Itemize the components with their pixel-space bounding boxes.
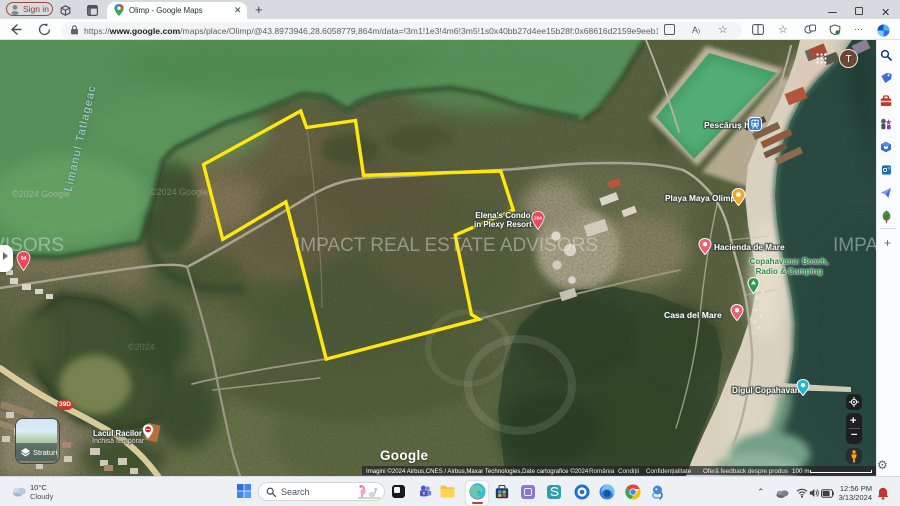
svg-text:94: 94 <box>21 256 27 262</box>
svg-text:T: T <box>422 490 425 495</box>
svg-text:284: 284 <box>534 216 542 221</box>
